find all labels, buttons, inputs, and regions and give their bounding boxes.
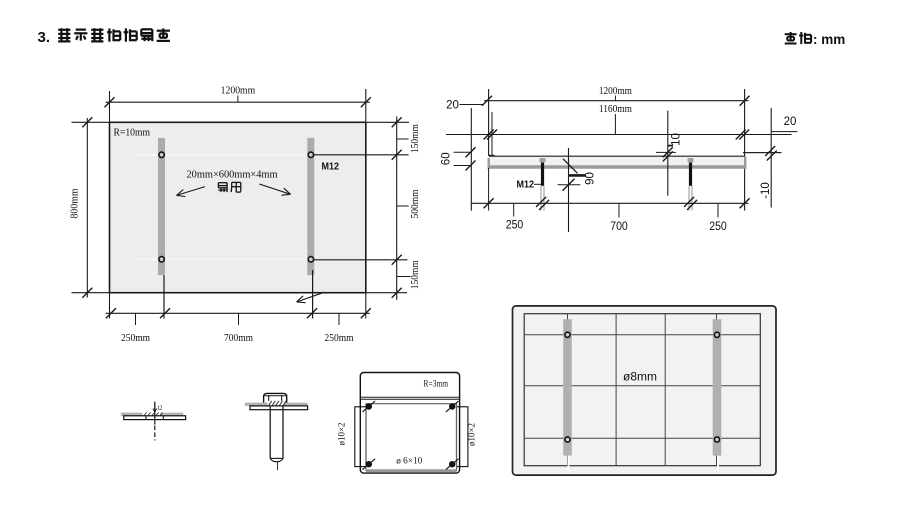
svg-text:ø10×2: ø10×2	[468, 423, 478, 446]
svg-text:150mm: 150mm	[409, 124, 421, 153]
svg-text:-10: -10	[760, 182, 772, 199]
svg-text:250mm: 250mm	[325, 332, 354, 344]
svg-text:M12: M12	[322, 162, 340, 173]
svg-text:250: 250	[709, 221, 727, 233]
svg-text:t2: t2	[158, 405, 163, 412]
svg-text:1200mm: 1200mm	[599, 85, 632, 97]
svg-text:: mm: : mm	[813, 32, 845, 47]
svg-text:150mm: 150mm	[409, 260, 421, 289]
svg-text:ø10×2: ø10×2	[338, 422, 348, 445]
svg-text:60: 60	[441, 152, 453, 165]
svg-text:10: 10	[671, 133, 683, 146]
svg-text:20: 20	[446, 100, 459, 112]
svg-text:250: 250	[506, 220, 524, 232]
svg-text:R=10mm: R=10mm	[114, 127, 151, 139]
svg-text:500mm: 500mm	[409, 189, 421, 218]
svg-text:700: 700	[610, 221, 628, 233]
svg-text:ø 6×10: ø 6×10	[396, 456, 422, 466]
svg-text:3.: 3.	[38, 29, 51, 46]
svg-text:700mm: 700mm	[224, 332, 253, 344]
svg-text:1160mm: 1160mm	[599, 103, 632, 115]
svg-text:R=3mm: R=3mm	[424, 379, 449, 389]
svg-text:ø8mm: ø8mm	[623, 370, 657, 384]
svg-text:800mm: 800mm	[69, 188, 81, 218]
svg-text:20mm×600mm×4mm: 20mm×600mm×4mm	[187, 169, 278, 181]
svg-text:20: 20	[784, 116, 797, 128]
svg-text:90: 90	[585, 172, 597, 185]
svg-text:1200mm: 1200mm	[221, 85, 256, 97]
svg-text:M12: M12	[517, 180, 535, 191]
svg-text:250mm: 250mm	[121, 332, 150, 344]
